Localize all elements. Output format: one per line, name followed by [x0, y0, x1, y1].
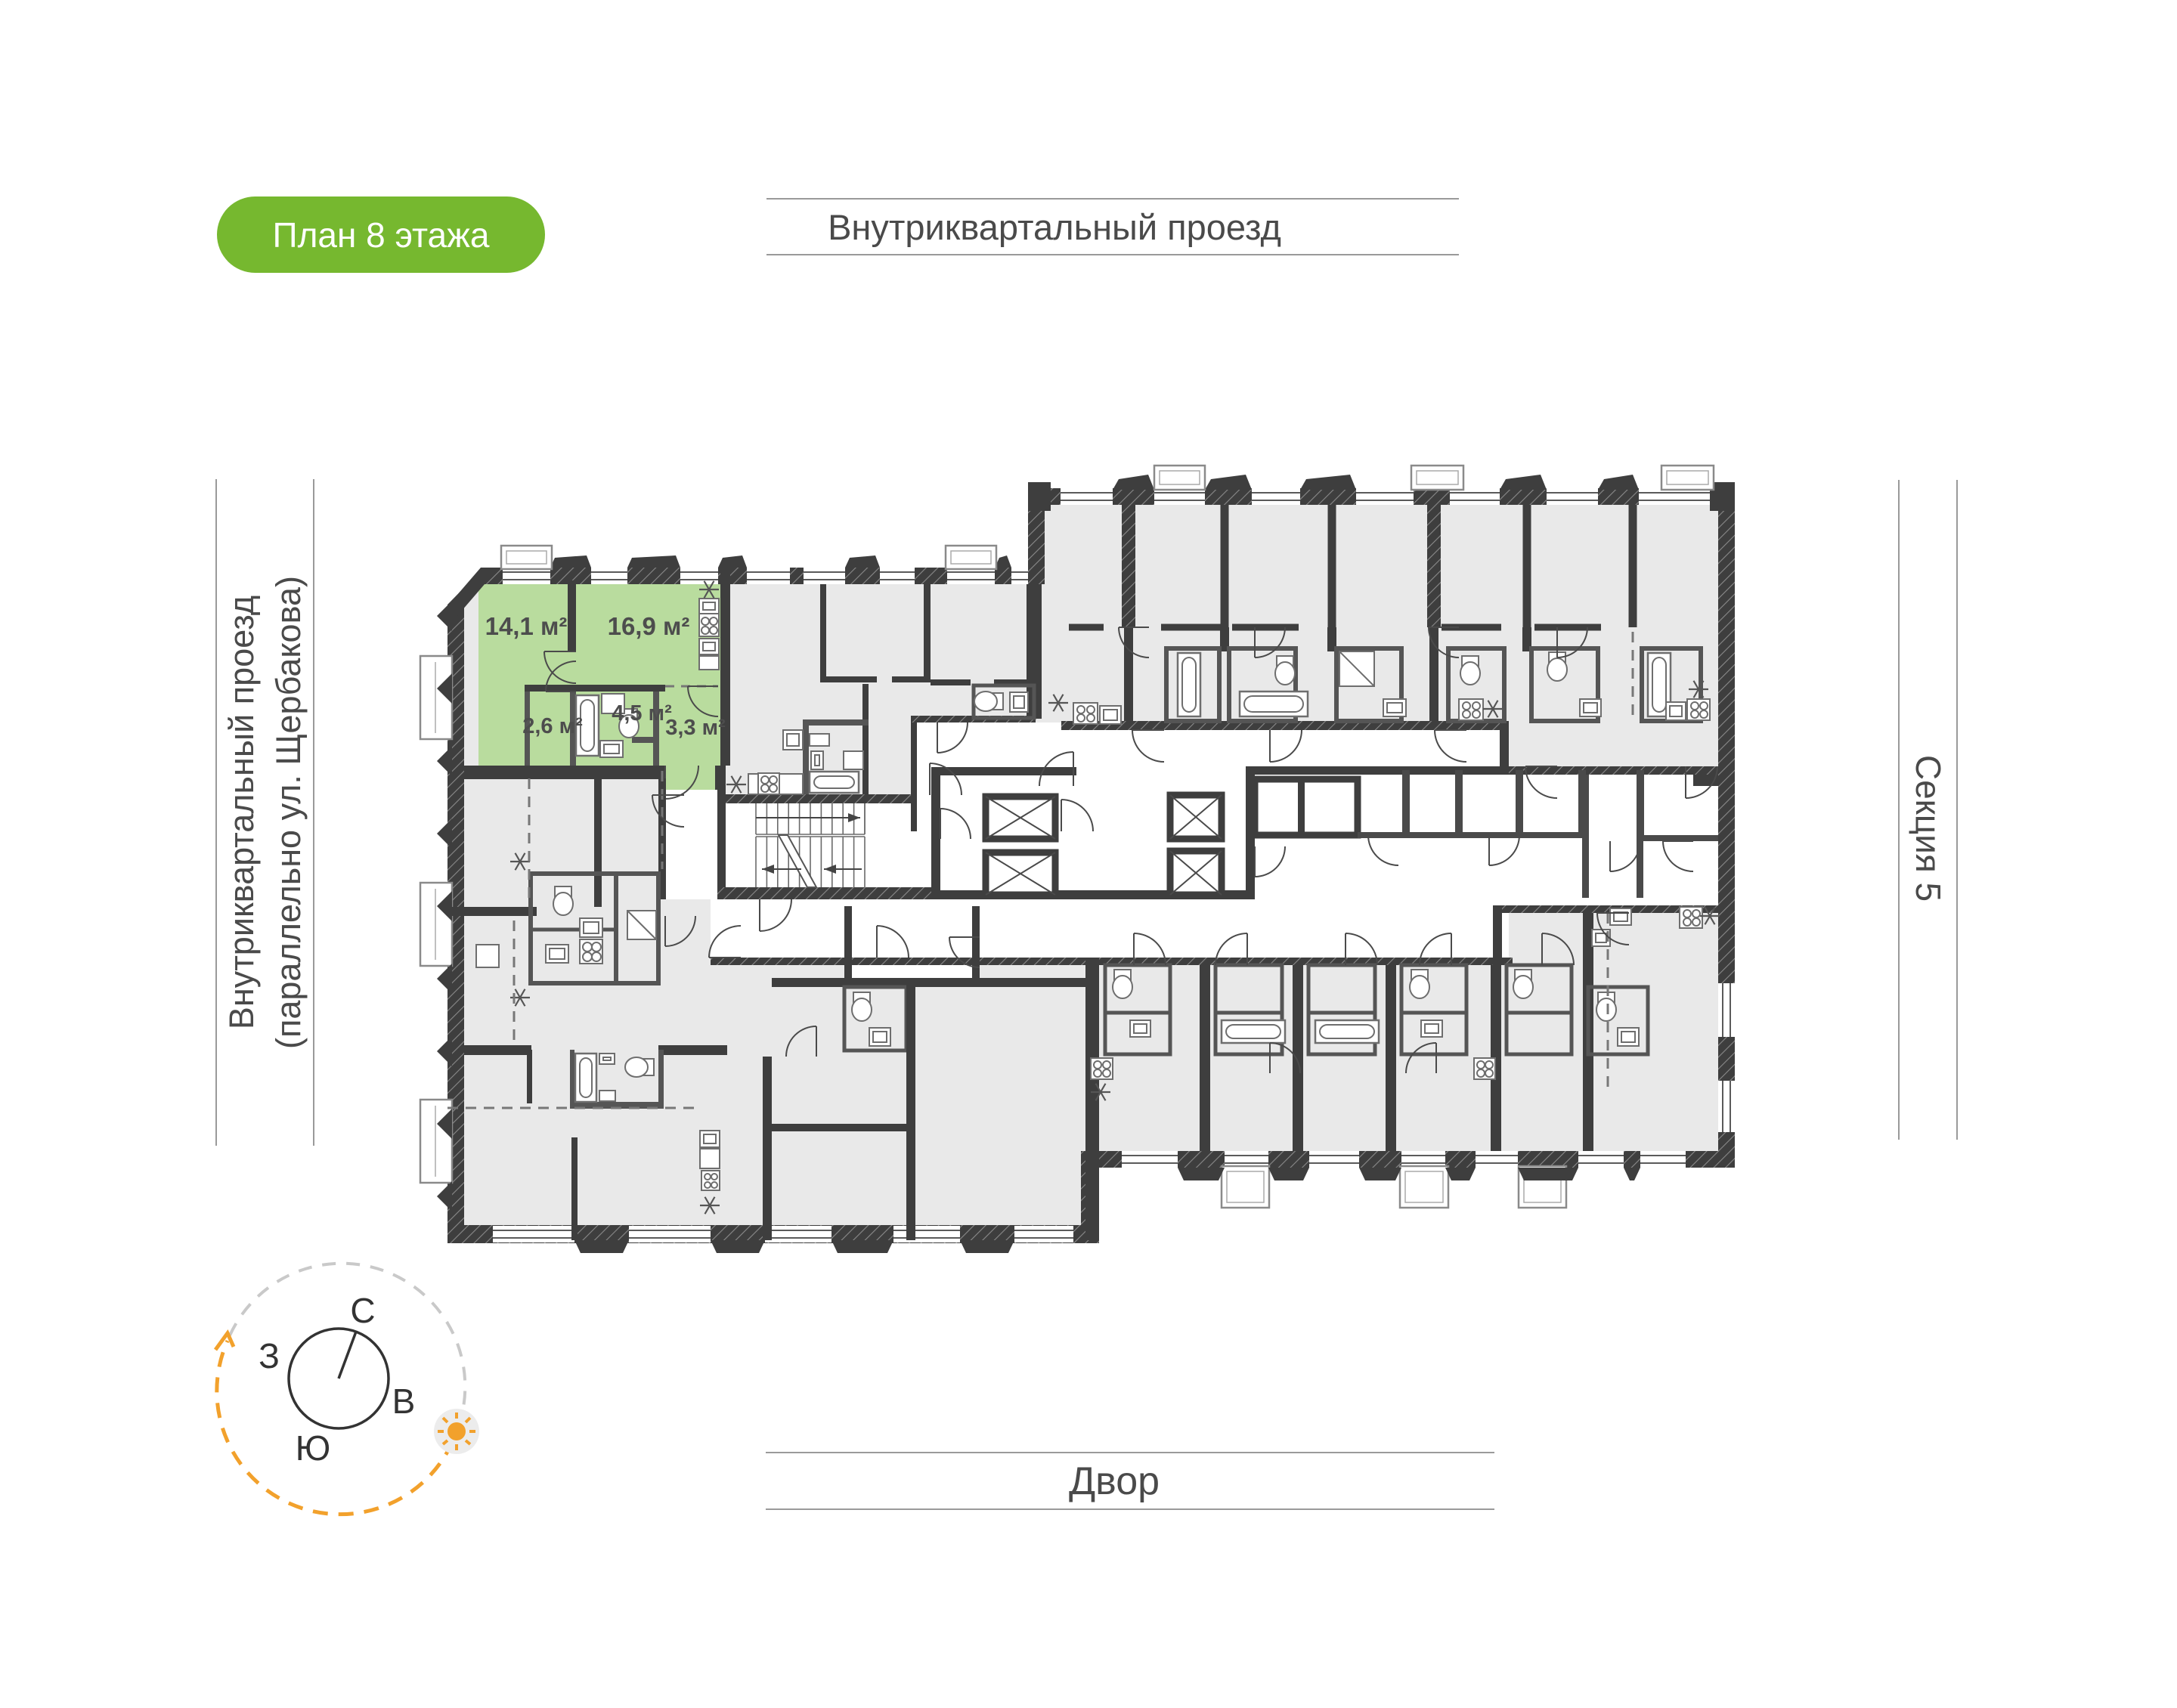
svg-text:4,5 м²: 4,5 м² — [612, 701, 672, 726]
svg-text:3,3 м²: 3,3 м² — [665, 716, 726, 740]
svg-text:В: В — [392, 1382, 416, 1421]
svg-text:С: С — [350, 1291, 375, 1330]
svg-text:Ю: Ю — [296, 1428, 330, 1468]
svg-text:16,9 м²: 16,9 м² — [608, 612, 690, 640]
svg-text:З: З — [259, 1336, 280, 1375]
svg-text:2,6 м²: 2,6 м² — [522, 714, 583, 738]
svg-text:14,1 м²: 14,1 м² — [485, 612, 568, 640]
